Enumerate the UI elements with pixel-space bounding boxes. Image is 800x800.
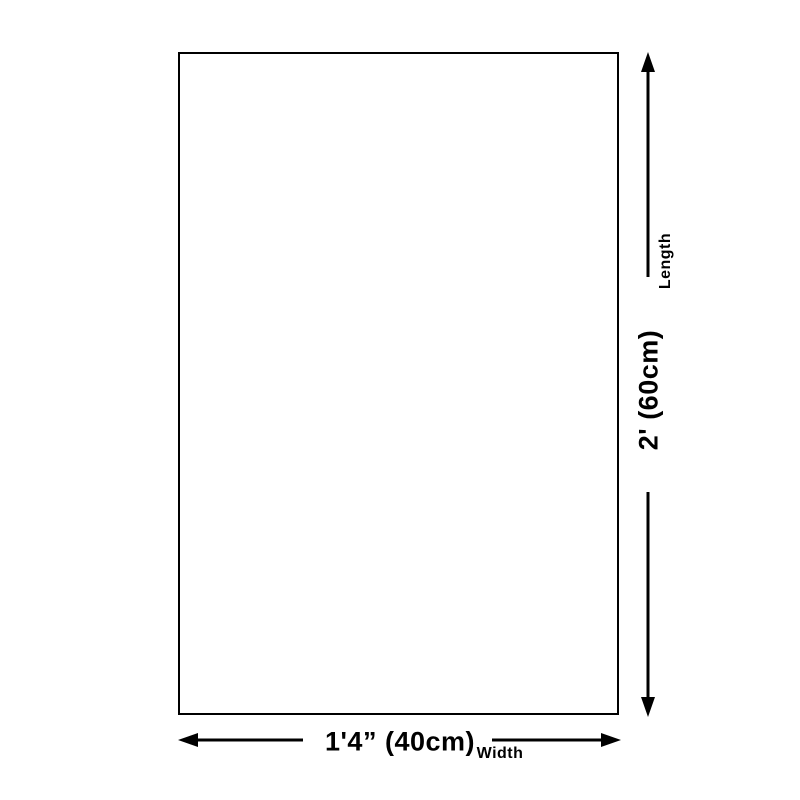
product-outline-rectangle bbox=[178, 52, 619, 715]
dimension-diagram: 2' (60cm) Length 1'4” (40cm) Width bbox=[0, 0, 800, 800]
length-value: 2' (60cm) bbox=[636, 330, 663, 450]
width-label: Width bbox=[477, 746, 524, 762]
width-value: 1'4” (40cm) bbox=[325, 729, 475, 756]
length-label: Length bbox=[658, 233, 674, 289]
